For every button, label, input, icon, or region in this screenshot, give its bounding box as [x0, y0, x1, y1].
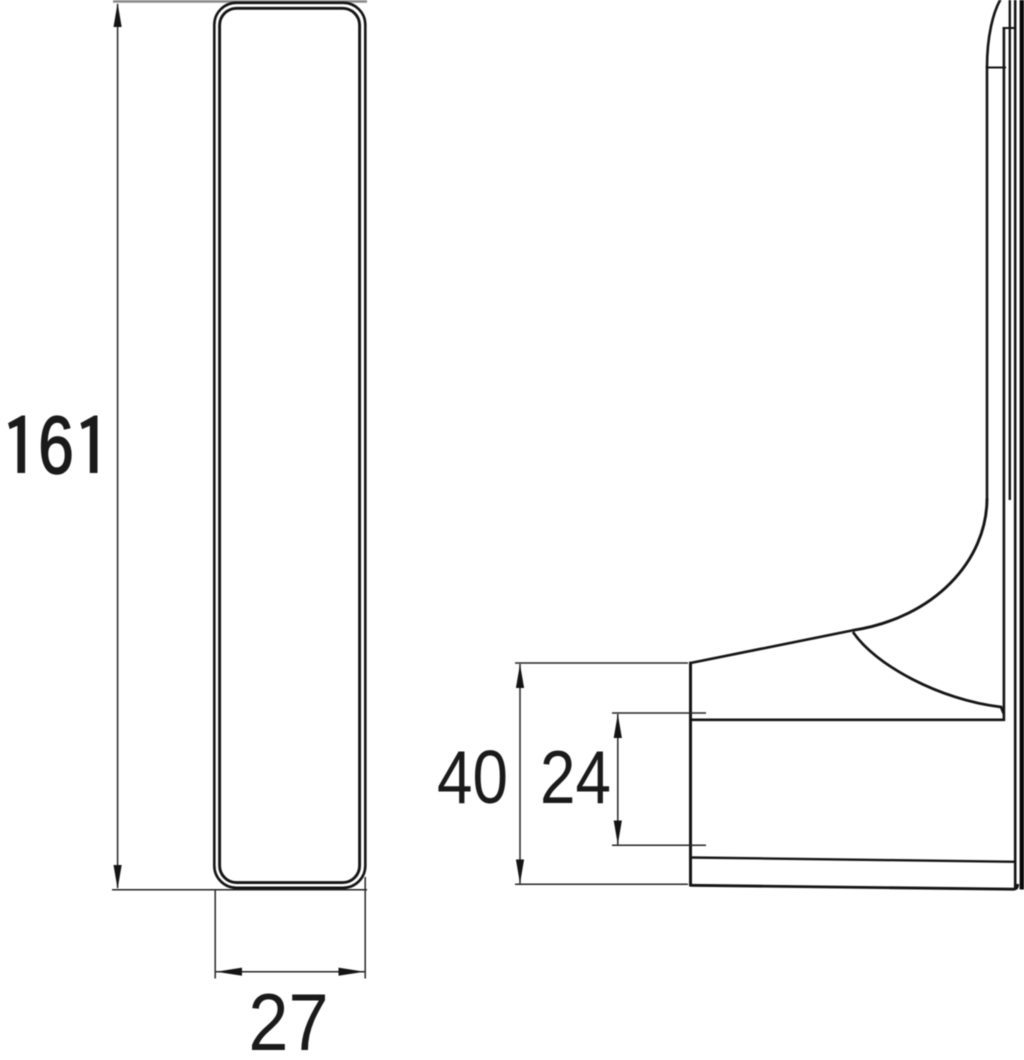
svg-text:27: 27	[248, 978, 328, 1060]
svg-text:24: 24	[540, 735, 611, 819]
svg-text:40: 40	[437, 735, 508, 819]
svg-text:6: 6	[38, 398, 74, 491]
